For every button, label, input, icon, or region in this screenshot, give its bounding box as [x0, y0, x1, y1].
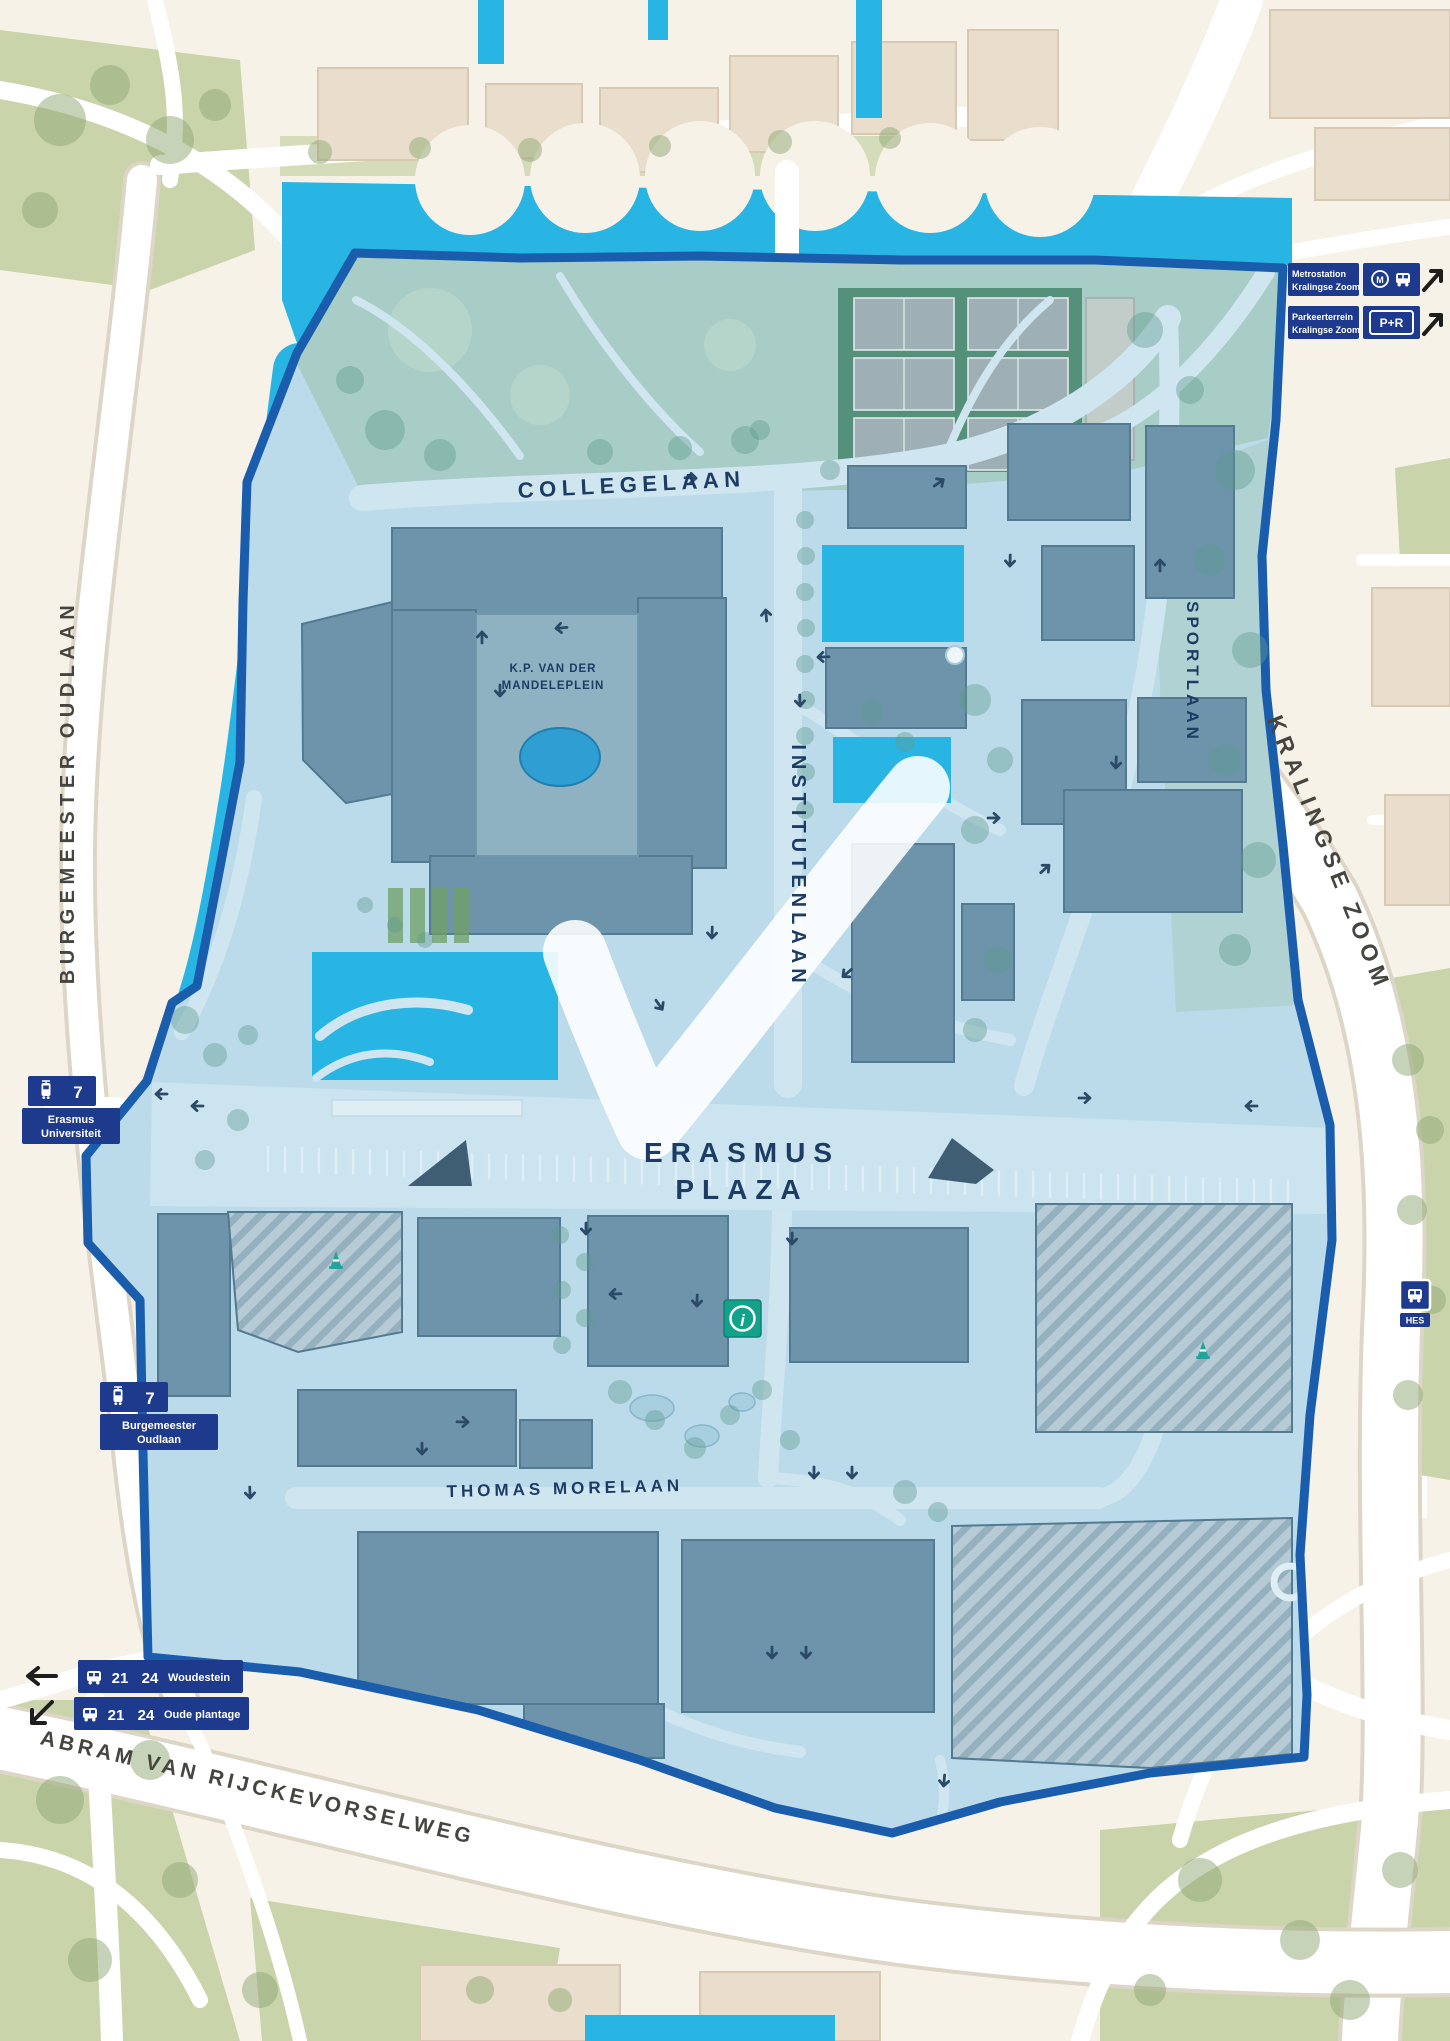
tree-icon	[308, 140, 332, 164]
city-block	[968, 30, 1058, 140]
park-mound	[510, 365, 570, 425]
place-label-mandeleplein-line1: K.P. VAN DER	[510, 663, 597, 675]
tree-icon	[199, 89, 231, 121]
city-block	[1372, 588, 1450, 706]
road-label-institutenlaan: INSTITUTENLAAN	[787, 744, 809, 987]
canal-bank-scallop	[985, 127, 1095, 237]
building	[638, 598, 726, 868]
water-pool	[822, 545, 964, 642]
tree-icon	[409, 137, 431, 159]
tree-icon	[1382, 1852, 1418, 1888]
area-under-construction	[228, 1212, 402, 1352]
campus-map-page: BURGEMEESTER OUDLAAN KRALINGSE ZOOM ABRA…	[0, 0, 1450, 2041]
city-block	[1270, 10, 1450, 118]
tree-icon	[1219, 934, 1251, 966]
road-label-burgemeester-oudlaan: BURGEMEESTER OUDLAAN	[57, 600, 79, 984]
building	[682, 1540, 934, 1712]
building	[520, 1420, 592, 1468]
building	[158, 1214, 230, 1396]
tree-icon	[895, 732, 915, 752]
tree-icon	[797, 619, 815, 637]
green-area	[1395, 458, 1450, 560]
tree-icon	[720, 1405, 740, 1425]
tree-icon	[227, 1109, 249, 1131]
tree-icon	[36, 1776, 84, 1824]
road-label-sportlaan: SPORTLAAN	[1183, 601, 1202, 743]
tree-icon	[195, 1150, 215, 1170]
tree-icon	[162, 1862, 198, 1898]
tree-icon	[34, 94, 86, 146]
canal-bank-scallop	[415, 125, 525, 235]
tree-icon	[576, 1309, 594, 1327]
bus-line-b: 24	[142, 1670, 159, 1687]
tree-icon	[1416, 1116, 1444, 1144]
bus-line-b: 24	[138, 1707, 155, 1724]
tram-line-number: 7	[145, 1389, 154, 1408]
tree-icon	[1392, 1044, 1424, 1076]
tree-icon	[959, 684, 991, 716]
building	[588, 1216, 728, 1366]
bus-stop-name: HES	[1406, 1316, 1425, 1326]
tram-stop-name-line2: Universiteit	[41, 1128, 101, 1140]
building-under-construction	[952, 1518, 1292, 1768]
bus-stop-badge-hes: HES	[1400, 1280, 1430, 1327]
tree-icon	[1240, 842, 1276, 878]
tree-icon	[548, 1988, 572, 2012]
tree-icon	[1232, 632, 1268, 668]
tree-icon	[1209, 744, 1241, 776]
metro-station-badge-line1: Metrostation	[1292, 269, 1346, 279]
tree-icon	[387, 917, 403, 933]
tree-icon	[551, 1226, 569, 1244]
tree-icon	[879, 127, 901, 149]
tree-icon	[336, 366, 364, 394]
tree-icon	[424, 439, 456, 471]
tree-icon	[22, 192, 58, 228]
tree-icon	[238, 1025, 258, 1045]
tree-icon	[961, 816, 989, 844]
tree-icon	[796, 655, 814, 673]
path-south-3	[940, 1760, 944, 1815]
fountain	[946, 646, 964, 664]
campus-map-canvas[interactable]: BURGEMEESTER OUDLAAN KRALINGSE ZOOM ABRA…	[0, 0, 1450, 2041]
tree-icon	[357, 897, 373, 913]
bus-stop-name: Woudestein	[168, 1672, 230, 1684]
canal-south	[585, 2015, 835, 2041]
tree-icon	[750, 420, 770, 440]
tree-icon	[1215, 450, 1255, 490]
tree-icon	[1397, 1195, 1427, 1225]
tree-icon	[1176, 376, 1204, 404]
tree-icon	[171, 1006, 199, 1034]
tree-icon	[963, 1018, 987, 1042]
metro-station-badge: Metrostation Kralingse Zoom M	[1288, 263, 1441, 296]
tree-icon	[466, 1976, 494, 2004]
tree-icon	[146, 116, 194, 164]
bus-line-a: 21	[108, 1707, 125, 1724]
city-block	[1315, 128, 1450, 200]
place-label-mandeleplein-line2: MANDELEPLEIN	[502, 680, 605, 692]
tree-icon	[518, 138, 542, 162]
tree-icon	[860, 700, 884, 724]
tree-icon	[928, 1502, 948, 1522]
tree-icon	[417, 932, 433, 948]
tree-icon	[365, 410, 405, 450]
plaza-pergola	[332, 1100, 522, 1116]
tree-icon	[645, 1410, 665, 1430]
pr-badge-line1: Parkeerterrein	[1292, 312, 1353, 322]
tram-stop-name-line1: Erasmus	[48, 1114, 94, 1126]
tree-icon	[242, 1972, 278, 2008]
tree-icon	[780, 1430, 800, 1450]
tree-icon	[984, 946, 1012, 974]
tree-icon	[820, 460, 840, 480]
building	[826, 648, 966, 728]
parking-under-construction	[1036, 1204, 1292, 1432]
tree-icon	[1127, 312, 1163, 348]
building	[358, 1532, 658, 1704]
building	[392, 610, 476, 862]
city-block	[1385, 795, 1450, 905]
tree-icon	[1194, 544, 1226, 576]
place-label-erasmus-plaza-line1: ERASMUS	[644, 1137, 840, 1168]
tram-stop-name-line1: Burgemeester	[122, 1420, 197, 1432]
building	[848, 466, 966, 528]
canal-spur	[478, 0, 504, 64]
pr-badge-line2: Kralingse Zoom	[1292, 325, 1360, 335]
building	[1042, 546, 1134, 640]
tree-icon	[553, 1281, 571, 1299]
building	[418, 1218, 560, 1336]
svg-text:M: M	[1376, 275, 1384, 285]
building	[1064, 790, 1242, 912]
tram-line-number: 7	[73, 1083, 82, 1102]
canal-spur	[648, 0, 668, 40]
tree-icon	[553, 1336, 571, 1354]
park-mound	[704, 319, 756, 371]
building	[790, 1228, 968, 1362]
metro-station-badge-line2: Kralingse Zoom	[1292, 282, 1360, 292]
tree-icon	[608, 1380, 632, 1404]
tree-icon	[649, 135, 671, 157]
tree-icon	[576, 1253, 594, 1271]
tree-icon	[752, 1380, 772, 1400]
tree-icon	[1134, 1974, 1166, 2006]
bus-stop-name: Oude plantage	[164, 1709, 240, 1721]
tree-icon	[796, 727, 814, 745]
info-badge: i	[724, 1300, 761, 1337]
building	[1008, 424, 1130, 520]
pr-chip-label: P+R	[1380, 316, 1404, 330]
tree-icon	[893, 1480, 917, 1504]
tree-icon	[1330, 1980, 1370, 2020]
building	[1146, 426, 1234, 598]
tree-icon	[587, 439, 613, 465]
tree-icon	[1393, 1380, 1423, 1410]
tree-icon	[684, 1437, 706, 1459]
pr-badge: Parkeerterrein Kralingse Zoom P+R	[1288, 306, 1441, 339]
tree-icon	[1178, 1858, 1222, 1902]
tree-icon	[987, 747, 1013, 773]
tree-icon	[203, 1043, 227, 1067]
tree-icon	[768, 130, 792, 154]
tree-icon	[90, 65, 130, 105]
place-label-erasmus-plaza-line2: PLAZA	[675, 1174, 808, 1205]
tram-stop-name-line2: Oudlaan	[137, 1434, 181, 1446]
courtyard-pond	[520, 728, 600, 786]
tree-icon	[668, 436, 692, 460]
building	[430, 856, 692, 934]
building	[298, 1390, 516, 1466]
canal-bank-scallop	[530, 123, 640, 233]
tree-icon	[796, 511, 814, 529]
building	[302, 602, 392, 803]
bus-line-a: 21	[112, 1670, 129, 1687]
tree-icon	[1280, 1920, 1320, 1960]
tree-icon	[68, 1938, 112, 1982]
tree-icon	[797, 547, 815, 565]
tree-icon	[796, 583, 814, 601]
canal-spur	[856, 0, 882, 118]
